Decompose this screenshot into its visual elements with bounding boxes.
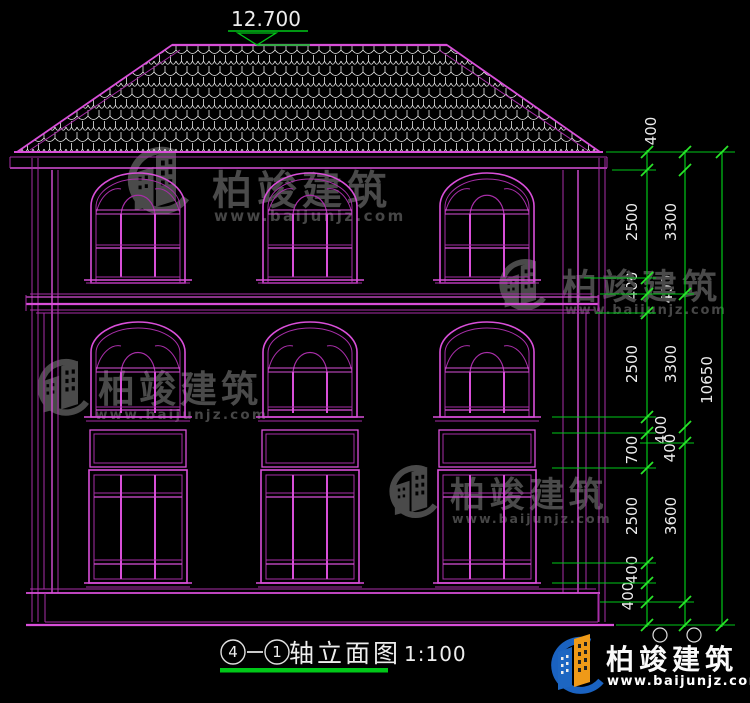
axis-bubbles bbox=[653, 628, 701, 642]
cad-elevation-drawing: 400 2500 400 2500 700 2500 400 400 400 4… bbox=[0, 0, 750, 703]
watermark-logo-icon bbox=[392, 467, 435, 515]
watermark-logo-icon bbox=[41, 361, 87, 412]
watermark-brand: 柏竣建筑 bbox=[450, 475, 608, 516]
plinth bbox=[26, 589, 614, 625]
title-underline bbox=[220, 668, 388, 673]
spandrel-panels bbox=[90, 430, 535, 467]
ground-window-2 bbox=[256, 470, 364, 587]
drawing-title-block: 4 1 轴立面图 1:100 bbox=[220, 639, 467, 673]
dim-label-total: 10650 bbox=[698, 356, 716, 404]
ground-window-1 bbox=[84, 470, 192, 587]
roof-tile-surface bbox=[17, 45, 600, 152]
dimension-labels: 400 2500 400 2500 700 2500 400 400 400 4… bbox=[619, 117, 716, 611]
drawing-scale: 1:100 bbox=[404, 642, 467, 666]
dim-label: 3600 bbox=[662, 497, 680, 535]
dim-label: 400 bbox=[661, 434, 679, 463]
footer-logo: 柏竣建筑 www.baijunjz.com bbox=[555, 634, 750, 690]
dim-label: 2500 bbox=[623, 203, 641, 241]
eave-fascia bbox=[10, 152, 607, 168]
footer-brand: 柏竣建筑 bbox=[606, 643, 738, 676]
axis-number-start: 4 bbox=[228, 643, 238, 661]
watermark-2: 柏竣建筑 www.baijunjz.com bbox=[502, 261, 726, 318]
axis-bubble-2 bbox=[687, 628, 701, 642]
footer-url: www.baijunjz.com bbox=[607, 674, 750, 689]
logo-building-orange-icon bbox=[574, 634, 590, 687]
dim-label-eave: 400 bbox=[642, 117, 660, 146]
hip-roof bbox=[17, 45, 600, 152]
floor-band bbox=[26, 294, 598, 313]
watermark-logo-icon bbox=[502, 261, 543, 308]
dim-label: 2500 bbox=[623, 345, 641, 383]
dim-label: 700 bbox=[623, 436, 641, 465]
middle-window-2 bbox=[263, 322, 357, 417]
dim-label: 400 bbox=[623, 556, 641, 585]
watermark-url: www.baijunjz.com bbox=[452, 511, 612, 526]
elevation-triangle-icon bbox=[238, 33, 276, 45]
elevation-marker bbox=[228, 31, 310, 45]
dim-label: 3300 bbox=[662, 345, 680, 383]
watermark-brand: 柏竣建筑 bbox=[562, 267, 722, 308]
dim-label: 2500 bbox=[623, 497, 641, 535]
elevation-value: 12.700 bbox=[231, 7, 301, 31]
axis-bubble-1 bbox=[653, 628, 667, 642]
watermark-logo-icon bbox=[132, 149, 186, 210]
dim-label: 3300 bbox=[662, 203, 680, 241]
axis-number-end: 1 bbox=[272, 643, 282, 661]
middle-window-3 bbox=[440, 322, 534, 417]
logo-building-blue-icon bbox=[558, 647, 572, 690]
building-facade bbox=[10, 45, 614, 625]
dim-label: 400 bbox=[619, 582, 637, 611]
drawing-title: 轴立面图 bbox=[289, 639, 401, 668]
